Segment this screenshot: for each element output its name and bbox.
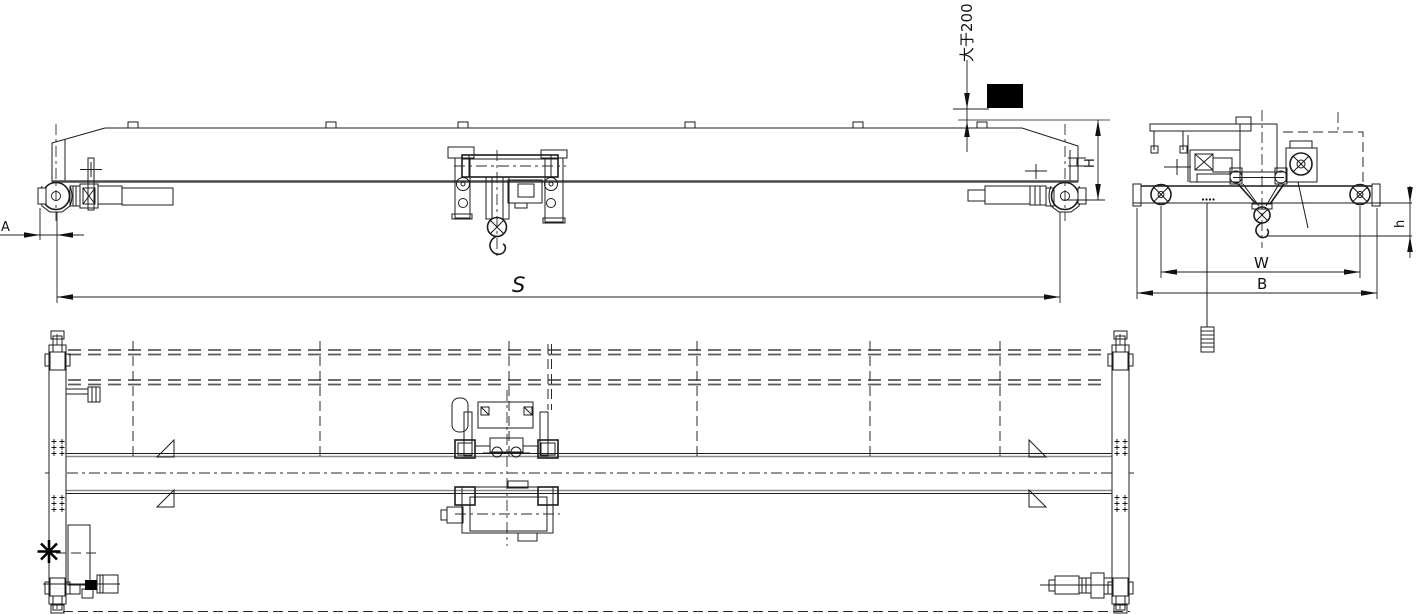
dim-label-h: h (1393, 220, 1408, 228)
roof-obstruction-block (987, 84, 1023, 108)
dim-label-W: W (1254, 254, 1269, 272)
dim-label-H: H (1083, 158, 1098, 168)
hoist-trolley-front (448, 147, 567, 257)
view-end: W B h (1133, 110, 1413, 352)
girder-plan (45, 440, 1135, 507)
end-carriage-right-plan (1040, 331, 1133, 613)
girder-front (52, 122, 1086, 182)
hoist-trolley-plan (441, 390, 560, 546)
stiffener-flag (1029, 440, 1046, 457)
dim-label-A: A (1, 220, 10, 235)
hoist-phantom-position (1283, 132, 1363, 182)
hoist-mechanism-end (1164, 112, 1363, 228)
end-truck-left-front (38, 124, 173, 221)
stiffener-flag (157, 490, 174, 507)
end-truck-right-front (968, 124, 1105, 221)
festoon-lines (66, 341, 1106, 461)
travel-drive-right-plan (1040, 573, 1112, 598)
crane-general-arrangement-drawing: 大于200 H S A (0, 0, 1419, 614)
dim-S: S (57, 212, 1060, 303)
hook-front (490, 236, 505, 254)
pendant-control (1201, 203, 1214, 352)
stiffener-flag (1029, 490, 1046, 507)
dim-label-S: S (512, 273, 525, 297)
dim-A: A (0, 208, 84, 240)
dim-h: h (1268, 186, 1413, 258)
view-front-elevation: 大于200 H S A (0, 3, 1110, 303)
dim-label-top-clearance: 大于200 (958, 3, 976, 62)
end-carriage-left-plan (38, 331, 121, 613)
stiffener-flag (157, 440, 174, 457)
collector-box (88, 387, 100, 402)
view-plan (38, 331, 1136, 613)
dim-label-B: B (1257, 275, 1267, 293)
top-clearance-annotation: 大于200 (953, 3, 1110, 152)
